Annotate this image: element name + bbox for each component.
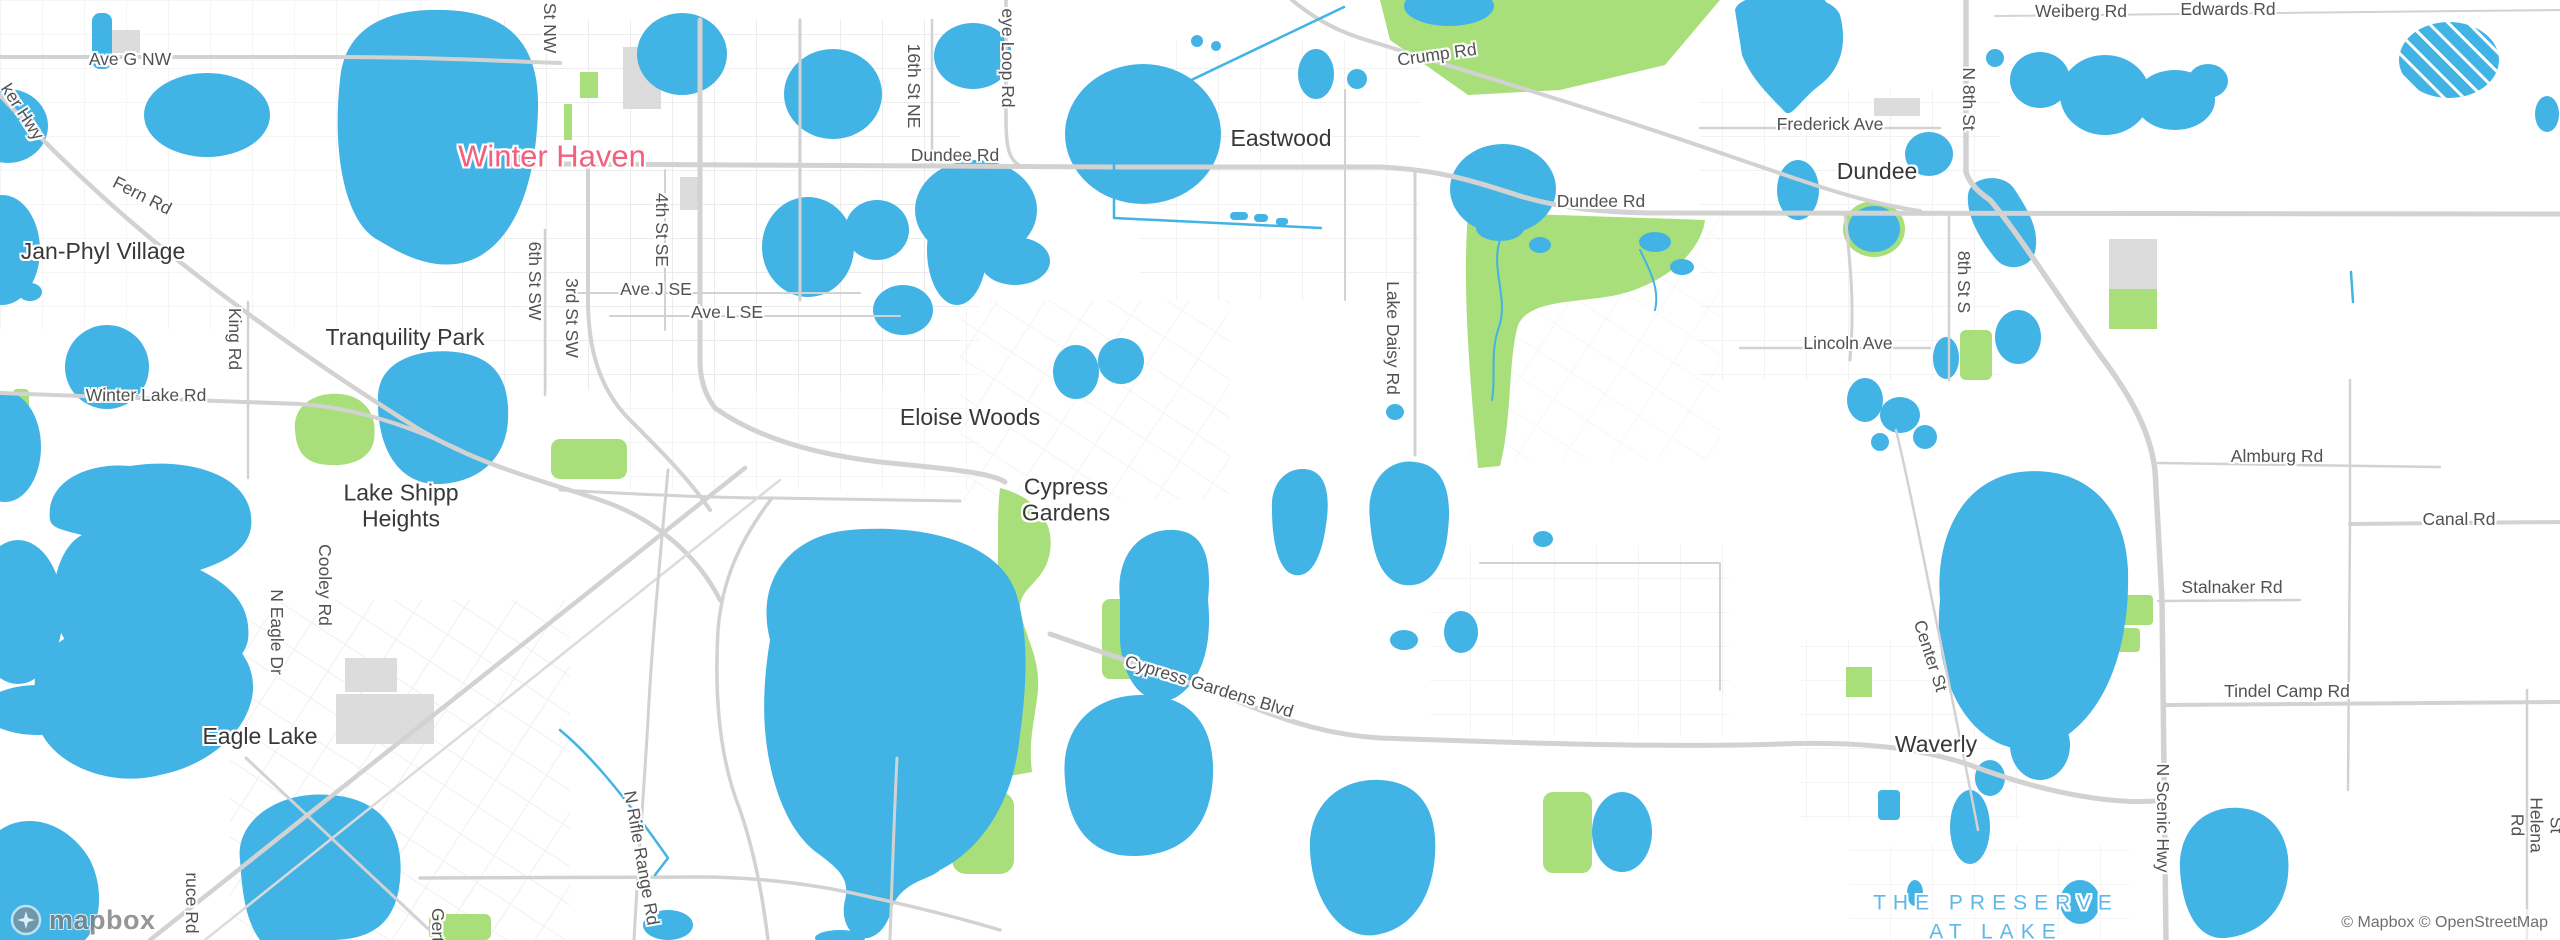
map-canvas[interactable]: Winter HavenJan-Phyl VillageTranquility … [0, 0, 2560, 940]
label-st-helena-rd: St Helena Rd [2507, 797, 2560, 852]
mapbox-wordmark: mapbox [49, 905, 156, 936]
label-stalnaker-rd: Stalnaker Rd [2181, 578, 2282, 598]
label-ruce-rd: ruce Rd [181, 872, 201, 933]
label-waverly: Waverly [1895, 732, 1977, 758]
label-3rd-st-sw: 3rd St SW [561, 278, 581, 358]
label-ave-l-se: Ave L SE [691, 303, 763, 323]
label-dundee-rd-e: Dundee Rd [1557, 192, 1646, 212]
label-king-rd: King Rd [224, 308, 244, 370]
label-frederick-ave: Frederick Ave [1777, 115, 1884, 135]
label-fern-rd: Fern Rd [109, 173, 174, 219]
label-dundee: Dundee [1837, 159, 1918, 185]
label-center-st: Center St [1909, 618, 1950, 694]
mapbox-logo[interactable]: mapbox [10, 904, 156, 936]
label-16th-st-ne: 16th St NE [903, 44, 923, 129]
label-eagle-lake: Eagle Lake [202, 724, 317, 750]
label-n-scenic-hwy: N Scenic Hwy [2152, 764, 2172, 873]
label-tranquility-park: Tranquility Park [326, 325, 485, 351]
label-winter-lake-rd: Winter Lake Rd [86, 386, 207, 406]
label-8th-st-s: 8th St S [1953, 251, 1973, 313]
label-eloise-woods: Eloise Woods [900, 405, 1040, 431]
label-the-preserve-at-lake: THE PRESERVE AT LAKE [1873, 889, 2119, 940]
mapbox-logo-icon [10, 904, 42, 936]
label-eye-loop-rd: eye Loop Rd [997, 8, 1017, 107]
label-n-8th-st: N 8th St [1958, 67, 1978, 130]
label-jan-phyl-village: Jan-Phyl Village [21, 239, 186, 265]
label-cypress-gardens: Cypress Gardens [1022, 474, 1110, 526]
label-n-rifle-range-rd: N Rifle Range Rd [620, 789, 663, 927]
label-almburg-rd: Almburg Rd [2231, 447, 2323, 467]
attribution-bar[interactable]: © Mapbox © OpenStreetMap [2327, 909, 2560, 940]
label-weiberg-rd: Weiberg Rd [2035, 2, 2127, 22]
label-canal-rd: Canal Rd [2423, 510, 2496, 530]
label-6th-st-sw: 6th St SW [524, 242, 544, 321]
label-dundee-rd-w: Dundee Rd [911, 146, 1000, 166]
label-tindel-camp-rd: Tindel Camp Rd [2224, 682, 2350, 702]
label-ave-g-nw: Ave G NW [89, 50, 171, 70]
label-winter-haven: Winter Haven [458, 140, 646, 175]
label-lake-daisy-rd: Lake Daisy Rd [1382, 281, 1402, 395]
label-ave-j-se: Ave J SE [620, 280, 692, 300]
map-label-layer: Winter HavenJan-Phyl VillageTranquility … [0, 0, 2560, 940]
label-st-nw: St NW [539, 3, 559, 54]
label-lake-shipp-heights: Lake Shipp Heights [343, 480, 458, 532]
label-4th-st-se: 4th St SE [651, 193, 671, 267]
label-cooley-rd: Cooley Rd [314, 544, 334, 626]
label-n-eagle-dr: N Eagle Dr [266, 589, 286, 675]
label-eastwood: Eastwood [1230, 126, 1331, 152]
label-ker-hwy: ker Hwy [0, 80, 47, 144]
label-gert-rd: Gert [427, 908, 447, 940]
label-edwards-rd: Edwards Rd [2180, 0, 2275, 20]
label-lincoln-ave: Lincoln Ave [1803, 334, 1892, 354]
label-cypress-gardens-blvd: Cypress Gardens Blvd [1122, 652, 1295, 722]
label-crump-rd: Crump Rd [1396, 40, 1478, 71]
